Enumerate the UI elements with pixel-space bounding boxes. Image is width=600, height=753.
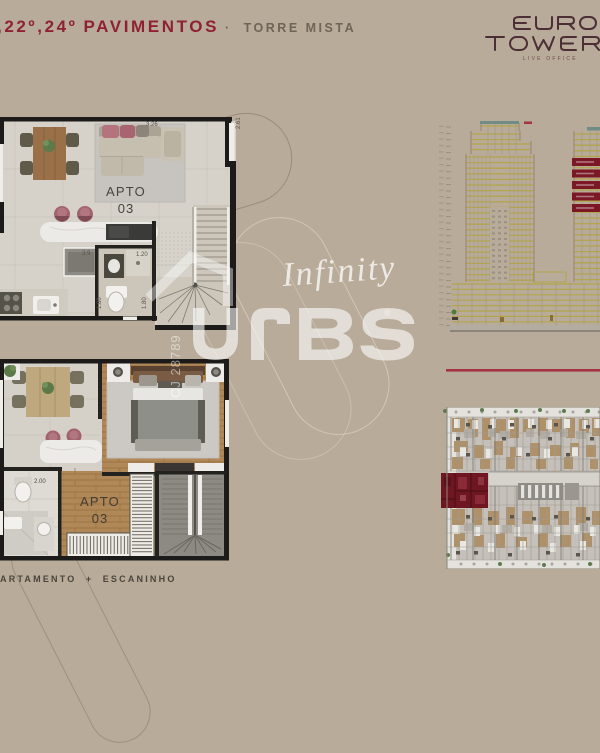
svg-text:Infinity: Infinity: [280, 249, 398, 294]
svg-text:®: ®: [384, 308, 391, 318]
svg-text:CJ 28789: CJ 28789: [168, 334, 183, 398]
